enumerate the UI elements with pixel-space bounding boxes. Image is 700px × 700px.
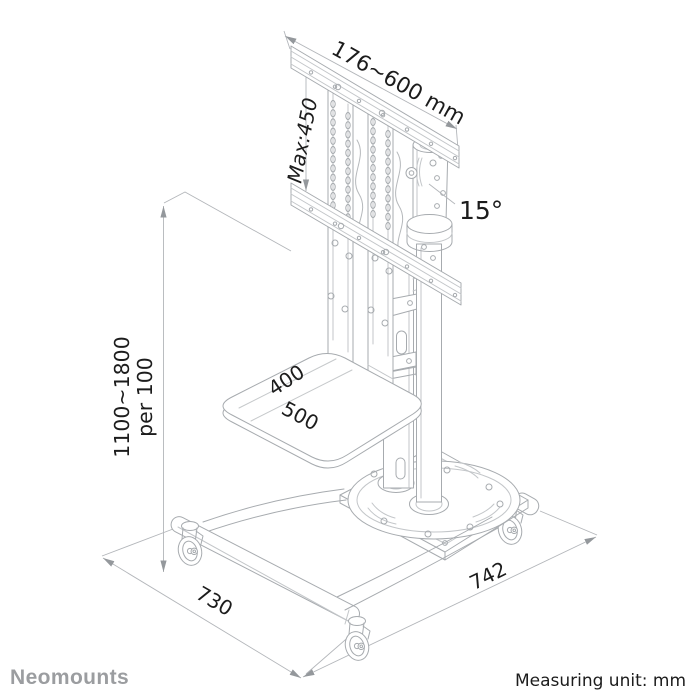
tv-floor-stand-diagram: 176~600 mm Max:450 15° 1100~1800 per 100…	[0, 0, 700, 700]
base-curve-back	[203, 489, 346, 533]
ext-line-base-depth	[102, 526, 181, 556]
ext-line-base-width-right	[540, 511, 597, 535]
brand-logo: Neomounts	[10, 666, 129, 690]
dim-label-height-step: per 100	[133, 357, 157, 437]
measuring-unit-note: Measuring unit: mm	[515, 671, 686, 691]
dim-label-tilt-angle: 15°	[459, 196, 503, 225]
base-leg-left	[168, 514, 362, 625]
dim-label-height-range: 1100~1800	[110, 336, 134, 458]
ext-line-base-width-left	[306, 634, 352, 674]
diagram-page: 176~600 mm Max:450 15° 1100~1800 per 100…	[0, 0, 700, 700]
tilt-collar	[407, 215, 452, 234]
dim-label-base-depth: 730	[192, 581, 237, 621]
dim-label-height-group: 1100~1800 per 100	[110, 336, 157, 458]
ext-line-height-top	[164, 192, 291, 251]
ext-line-bracket-width-left	[284, 31, 290, 49]
dim-label-bracket-max-height: Max:450	[282, 96, 322, 185]
